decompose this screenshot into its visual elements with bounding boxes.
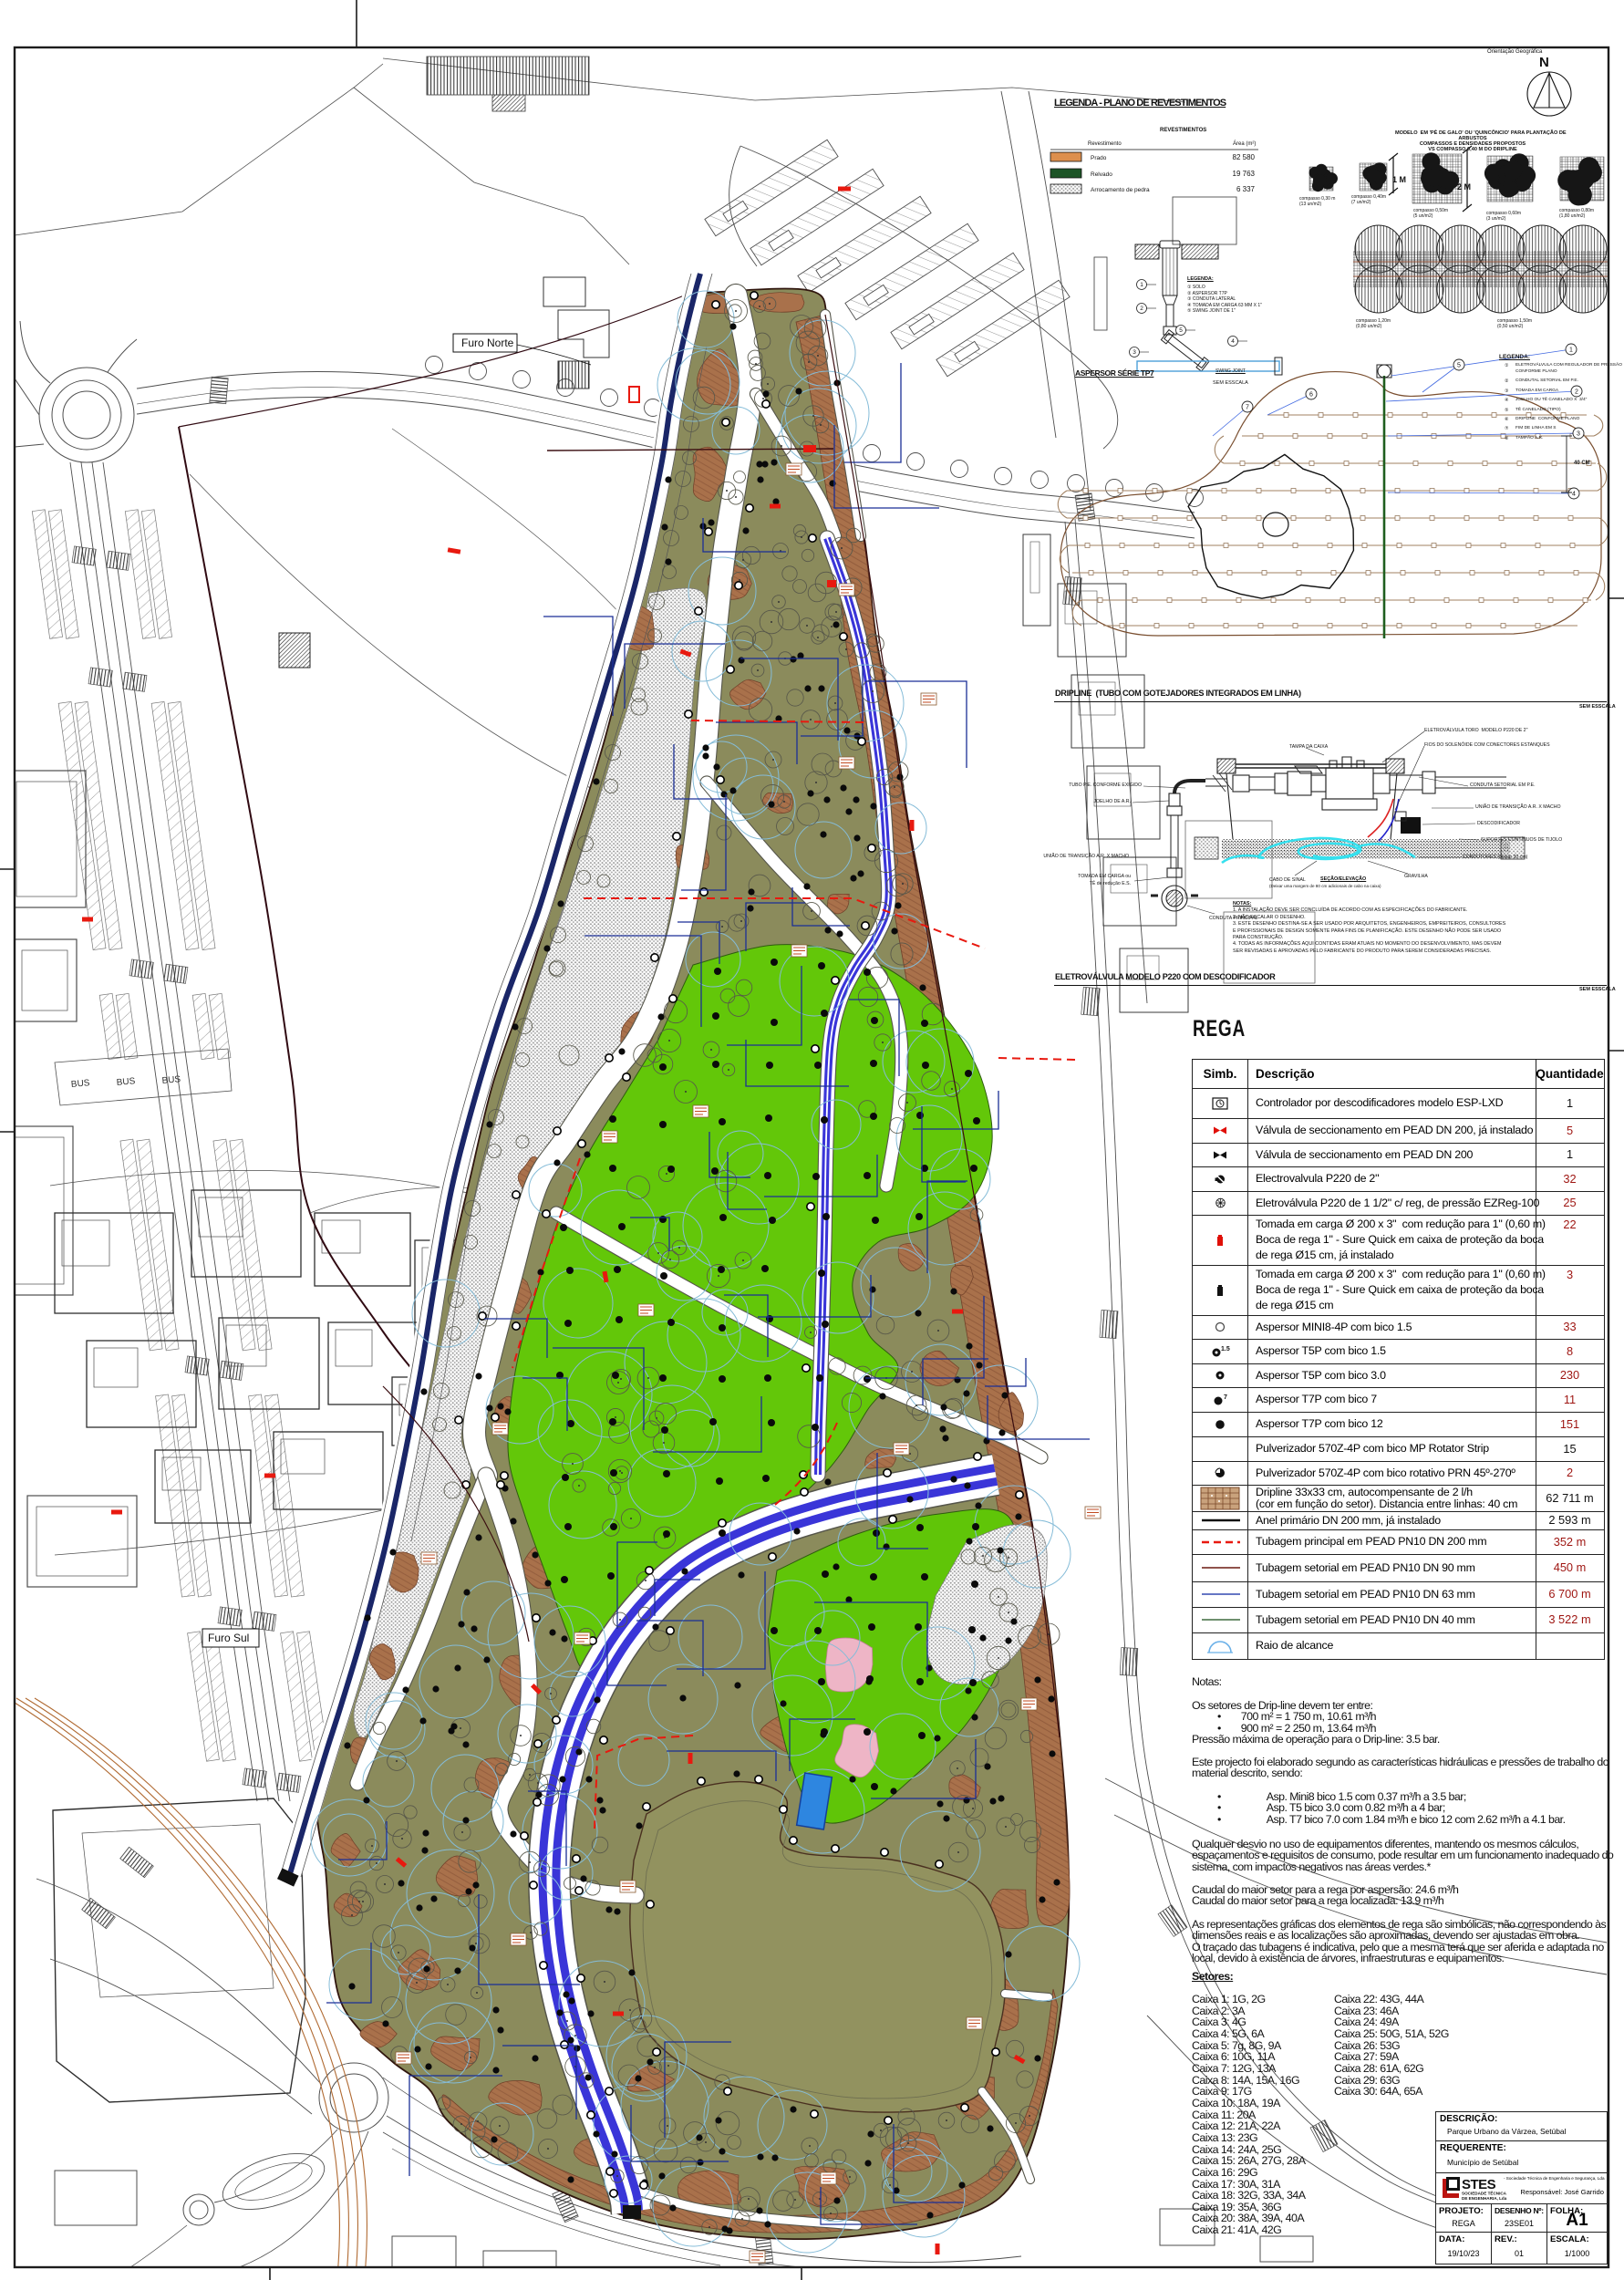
svg-text:7: 7 [1246,404,1249,410]
svg-text:DE ENGENHARIA, Lda: DE ENGENHARIA, Lda [1462,2196,1507,2201]
svg-text:1.5: 1.5 [1221,1346,1230,1352]
svg-text:3: 3 [1133,349,1136,356]
svg-text:BUS: BUS [116,1076,136,1088]
svg-text:7: 7 [1224,1394,1227,1401]
svg-text:BUS: BUS [70,1078,90,1090]
svg-text:1: 1 [1569,347,1573,353]
svg-text:6: 6 [1309,391,1313,398]
svg-text:SOCIEDADE TÉCNICA: SOCIEDADE TÉCNICA [1462,2190,1507,2196]
svg-text:4: 4 [1572,491,1576,497]
svg-text:2: 2 [1140,306,1143,312]
svg-text:4: 4 [1231,338,1235,345]
svg-text:BUS: BUS [161,1074,181,1086]
svg-text:STES: STES [1462,2177,1496,2192]
svg-text:1: 1 [1140,282,1143,288]
svg-text:5: 5 [1179,327,1183,334]
svg-text:2: 2 [1575,389,1578,395]
svg-text:5: 5 [1457,362,1461,368]
svg-text:3: 3 [1577,430,1580,437]
